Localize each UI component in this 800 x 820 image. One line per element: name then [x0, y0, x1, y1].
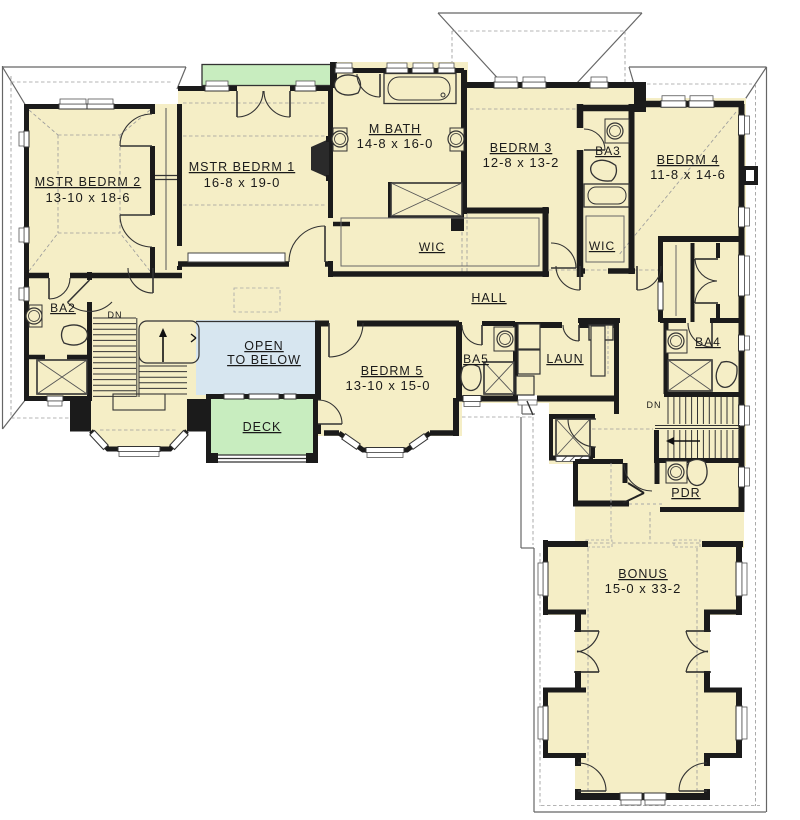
svg-text:TO BELOW: TO BELOW [227, 353, 301, 367]
svg-text:BA4: BA4 [695, 335, 721, 349]
svg-text:MSTR BEDRM 2: MSTR BEDRM 2 [35, 175, 141, 189]
svg-text:11-8 x 14-6: 11-8 x 14-6 [650, 167, 726, 182]
svg-text:HALL: HALL [471, 291, 506, 305]
svg-text:DECK: DECK [243, 420, 282, 434]
svg-text:DN: DN [647, 400, 662, 410]
svg-text:16-8 x 19-0: 16-8 x 19-0 [204, 175, 281, 190]
svg-text:13-10 x 15-0: 13-10 x 15-0 [346, 378, 431, 393]
svg-text:12-8 x 13-2: 12-8 x 13-2 [483, 155, 560, 170]
svg-text:13-10 x 18-6: 13-10 x 18-6 [46, 190, 131, 205]
svg-text:15-0 x 33-2: 15-0 x 33-2 [605, 581, 682, 596]
svg-text:BA5: BA5 [463, 352, 489, 366]
svg-text:BONUS: BONUS [618, 567, 667, 581]
svg-text:LAUN: LAUN [546, 352, 583, 366]
svg-text:MSTR BEDRM 1: MSTR BEDRM 1 [189, 160, 295, 174]
svg-text:14-8 x 16-0: 14-8 x 16-0 [357, 136, 434, 151]
svg-text:BA2: BA2 [50, 301, 76, 315]
svg-text:BEDRM 5: BEDRM 5 [361, 364, 424, 378]
svg-text:OPEN: OPEN [244, 339, 283, 353]
svg-text:DN: DN [108, 310, 123, 320]
svg-text:WIC: WIC [419, 240, 445, 254]
svg-text:WIC: WIC [589, 239, 615, 253]
svg-text:PDR: PDR [671, 486, 700, 500]
svg-text:BEDRM 4: BEDRM 4 [657, 153, 720, 167]
svg-text:BEDRM 3: BEDRM 3 [490, 141, 553, 155]
svg-text:M BATH: M BATH [369, 122, 421, 136]
svg-text:BA3: BA3 [595, 144, 621, 158]
